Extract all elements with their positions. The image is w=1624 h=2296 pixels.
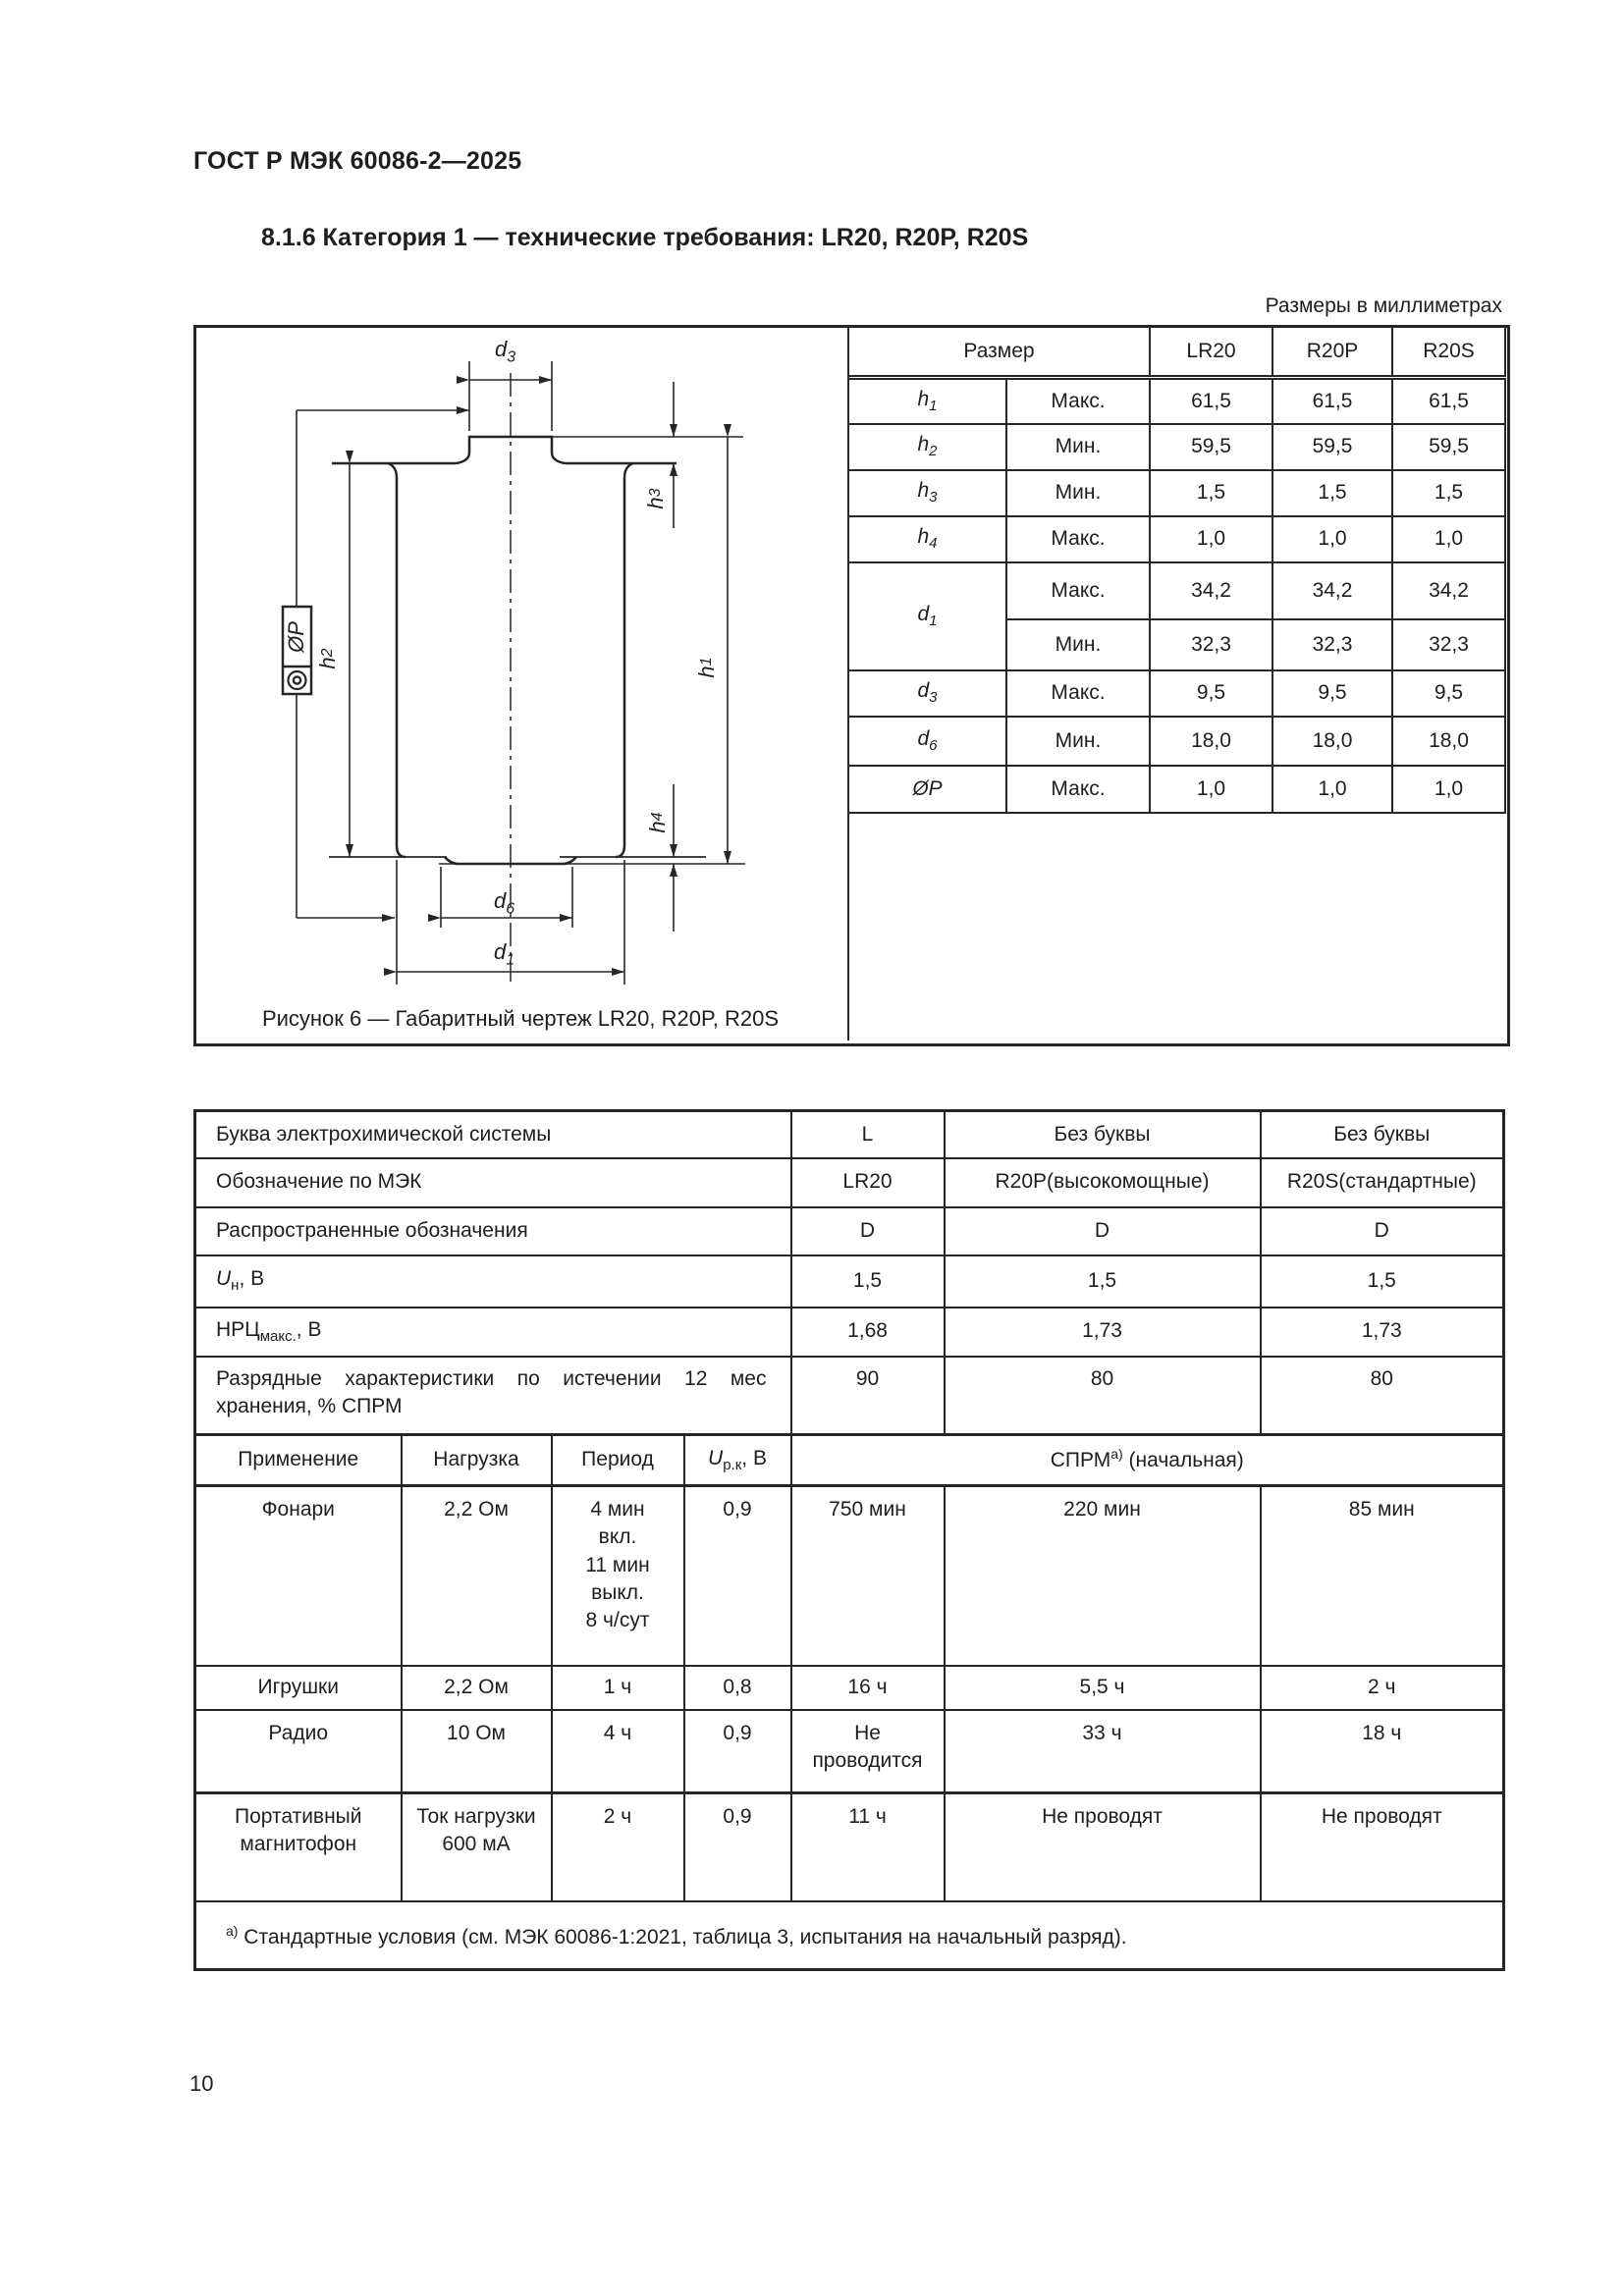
dim-limit: Мин. [1006, 470, 1150, 516]
app-header-application: Применение [195, 1435, 402, 1486]
app-name: Игрушки [195, 1666, 402, 1710]
section-title: 8.1.6 Категория 1 — технические требован… [261, 224, 1028, 252]
dim-sym-d3: d3 [848, 670, 1006, 717]
app-load: 2,2 Ом [402, 1486, 552, 1666]
dim-limit: Макс. [1006, 516, 1150, 562]
dim-sym-h4: h4 [848, 516, 1006, 562]
dim-value: 1,5 [1272, 470, 1392, 516]
app-voltage: 0,9 [684, 1793, 791, 1901]
app-value: 2 ч [1261, 1666, 1504, 1710]
dim-value: 1,0 [1392, 516, 1505, 562]
table-row: d6 Мин. 18,0 18,0 18,0 [848, 717, 1505, 766]
dim-value: 18,0 [1272, 717, 1392, 766]
app-voltage: 0,8 [684, 1666, 791, 1710]
footnote: а) Стандартные условия (см. МЭК 60086-1:… [195, 1901, 1504, 1970]
dim-limit: Макс. [1006, 670, 1150, 717]
page-number: 10 [189, 2071, 213, 2097]
table-row: Uн, В 1,5 1,5 1,5 [195, 1255, 1504, 1308]
spec-value: 80 [1261, 1357, 1504, 1435]
dim-value: 18,0 [1392, 717, 1505, 766]
dim-limit: Макс. [1006, 562, 1150, 619]
app-load: Ток нагрузки 600 мА [402, 1793, 552, 1901]
spec-value: 1,5 [1261, 1255, 1504, 1308]
dim-value: 9,5 [1392, 670, 1505, 717]
app-value: 33 ч [945, 1710, 1261, 1793]
dim-value: 32,3 [1150, 619, 1272, 670]
dimension-table: Размер LR20 R20P R20S h1 Макс. 61,5 61,5… [847, 325, 1506, 814]
dim-value: 9,5 [1272, 670, 1392, 717]
table-row: h1 Макс. 61,5 61,5 61,5 [848, 378, 1505, 424]
app-name: Радио [195, 1710, 402, 1793]
spec-value: Без буквы [1261, 1111, 1504, 1158]
dim-value: 61,5 [1392, 378, 1505, 424]
spec-table: Буква электрохимической системы L Без бу… [193, 1109, 1505, 1971]
app-name: Фонари [195, 1486, 402, 1666]
app-voltage: 0,9 [684, 1486, 791, 1666]
dim-limit: Макс. [1006, 766, 1150, 813]
table-row: Буква электрохимической системы L Без бу… [195, 1111, 1504, 1158]
tolerance-frame-label: ØP [283, 608, 310, 667]
footnote-row: а) Стандартные условия (см. МЭК 60086-1:… [195, 1901, 1504, 1970]
table-row: Радио 10 Ом 4 ч 0,9 Не проводится 33 ч 1… [195, 1710, 1504, 1793]
app-period: 4 ч [552, 1710, 684, 1793]
dim-limit: Мин. [1006, 717, 1150, 766]
dim-header-lr20: LR20 [1150, 326, 1272, 378]
dim-value: 59,5 [1272, 424, 1392, 470]
app-period: 4 мин вкл. 11 мин выкл. 8 ч/сут [552, 1486, 684, 1666]
spec-value: 1,5 [791, 1255, 945, 1308]
app-value: 750 мин [791, 1486, 945, 1666]
table-row: Фонари 2,2 Ом 4 мин вкл. 11 мин выкл. 8 … [195, 1486, 1504, 1666]
spec-label: Буква электрохимической системы [195, 1111, 791, 1158]
spec-value: 1,5 [945, 1255, 1261, 1308]
app-value: 5,5 ч [945, 1666, 1261, 1710]
spec-value: LR20 [791, 1158, 945, 1207]
app-value: 18 ч [1261, 1710, 1504, 1793]
dim-value: 34,2 [1272, 562, 1392, 619]
table-row: Разрядные характеристики по истечении 12… [195, 1357, 1504, 1435]
dim-value: 34,2 [1392, 562, 1505, 619]
app-value: 11 ч [791, 1793, 945, 1901]
app-period: 1 ч [552, 1666, 684, 1710]
dim-limit: Мин. [1006, 619, 1150, 670]
spec-label: Обозначение по МЭК [195, 1158, 791, 1207]
dim-value: 32,3 [1392, 619, 1505, 670]
dim-label-h1: h1 [693, 638, 721, 697]
app-value: Не проводят [945, 1793, 1261, 1901]
spec-value: 1,73 [945, 1308, 1261, 1357]
dim-value: 59,5 [1150, 424, 1272, 470]
drawing-lines [193, 325, 847, 1041]
app-header-voltage: Uр.к, В [684, 1435, 791, 1486]
dim-value: 59,5 [1392, 424, 1505, 470]
table-row: Обозначение по МЭК LR20 R20P(высокомощны… [195, 1158, 1504, 1207]
dim-limit: Мин. [1006, 424, 1150, 470]
dim-header-size: Размер [848, 326, 1150, 378]
spec-value: D [1261, 1207, 1504, 1255]
dim-value: 34,2 [1150, 562, 1272, 619]
spec-value: L [791, 1111, 945, 1158]
dim-value: 1,0 [1150, 516, 1272, 562]
table-row: НРЦмакс., В 1,68 1,73 1,73 [195, 1308, 1504, 1357]
doc-designation: ГОСТ Р МЭК 60086-2—2025 [193, 147, 521, 176]
document-page: ГОСТ Р МЭК 60086-2—2025 8.1.6 Категория … [0, 0, 1624, 2296]
spec-value: D [945, 1207, 1261, 1255]
app-header-mam: СПРМа) (начальная) [791, 1435, 1504, 1486]
dim-label-h4: h4 [644, 793, 672, 852]
spec-label-un: Uн, В [195, 1255, 791, 1308]
dim-limit: Макс. [1006, 378, 1150, 424]
app-header-period: Период [552, 1435, 684, 1486]
battery-dimension-drawing: d3 h3 h1 h2 h4 d6 d1 ØP [193, 325, 847, 1041]
dim-label-d6: d6 [494, 888, 514, 918]
app-load: 10 Ом [402, 1710, 552, 1793]
dim-sym-h1: h1 [848, 378, 1006, 424]
table-row: Распространенные обозначения D D D [195, 1207, 1504, 1255]
figure-caption: Рисунок 6 — Габаритный чертеж LR20, R20P… [193, 1006, 847, 1032]
app-value: Не проводят [1261, 1793, 1504, 1901]
dim-value: 1,0 [1272, 766, 1392, 813]
app-value: Не проводится [791, 1710, 945, 1793]
table-row: Игрушки 2,2 Ом 1 ч 0,8 16 ч 5,5 ч 2 ч [195, 1666, 1504, 1710]
dim-value: 9,5 [1150, 670, 1272, 717]
app-value: 16 ч [791, 1666, 945, 1710]
app-voltage: 0,9 [684, 1710, 791, 1793]
table-row: h2 Мин. 59,5 59,5 59,5 [848, 424, 1505, 470]
dim-value: 1,0 [1392, 766, 1505, 813]
dim-value: 1,5 [1392, 470, 1505, 516]
app-value: 85 мин [1261, 1486, 1504, 1666]
table-row: h4 Макс. 1,0 1,0 1,0 [848, 516, 1505, 562]
dim-value: 61,5 [1272, 378, 1392, 424]
spec-value: D [791, 1207, 945, 1255]
table-row: d1 Макс. 34,2 34,2 34,2 [848, 562, 1505, 619]
dim-label-h3: h3 [642, 469, 670, 528]
app-header-row: Применение Нагрузка Период Uр.к, В СПРМа… [195, 1435, 1504, 1486]
dim-label-d1: d1 [494, 939, 514, 969]
dim-sym-h3: h3 [848, 470, 1006, 516]
dim-sym-d6: d6 [848, 717, 1006, 766]
app-value: 220 мин [945, 1486, 1261, 1666]
app-name: Портативный магнитофон [195, 1793, 402, 1901]
table-row: ØP Макс. 1,0 1,0 1,0 [848, 766, 1505, 813]
dim-header-r20p: R20P [1272, 326, 1392, 378]
dim-value: 1,0 [1272, 516, 1392, 562]
dim-value: 32,3 [1272, 619, 1392, 670]
dim-label-d3: d3 [495, 337, 515, 366]
spec-value: 1,68 [791, 1308, 945, 1357]
dim-value: 1,5 [1150, 470, 1272, 516]
dim-sym-op: ØP [848, 766, 1006, 813]
spec-label-nrc: НРЦмакс., В [195, 1308, 791, 1357]
dim-sym-h2: h2 [848, 424, 1006, 470]
spec-value: 90 [791, 1357, 945, 1435]
dim-value: 1,0 [1150, 766, 1272, 813]
spec-value: 1,73 [1261, 1308, 1504, 1357]
dim-value: 18,0 [1150, 717, 1272, 766]
dim-sym-d1: d1 [848, 562, 1006, 670]
app-period: 2 ч [552, 1793, 684, 1901]
dim-table-header-row: Размер LR20 R20P R20S [848, 326, 1505, 378]
table-row: Портативный магнитофон Ток нагрузки 600 … [195, 1793, 1504, 1901]
dim-value: 61,5 [1150, 378, 1272, 424]
app-load: 2,2 Ом [402, 1666, 552, 1710]
app-header-load: Нагрузка [402, 1435, 552, 1486]
table-row: h3 Мин. 1,5 1,5 1,5 [848, 470, 1505, 516]
table-row: d3 Макс. 9,5 9,5 9,5 [848, 670, 1505, 717]
dim-header-r20s: R20S [1392, 326, 1505, 378]
spec-value: R20S(стандартные) [1261, 1158, 1504, 1207]
spec-value: Без буквы [945, 1111, 1261, 1158]
spec-value: R20P(высокомощные) [945, 1158, 1261, 1207]
spec-value: 80 [945, 1357, 1261, 1435]
spec-label: Разрядные характеристики по истечении 12… [195, 1357, 791, 1435]
dim-label-h2: h2 [314, 629, 342, 688]
spec-label: Распространенные обозначения [195, 1207, 791, 1255]
units-note: Размеры в миллиметрах [982, 294, 1502, 318]
